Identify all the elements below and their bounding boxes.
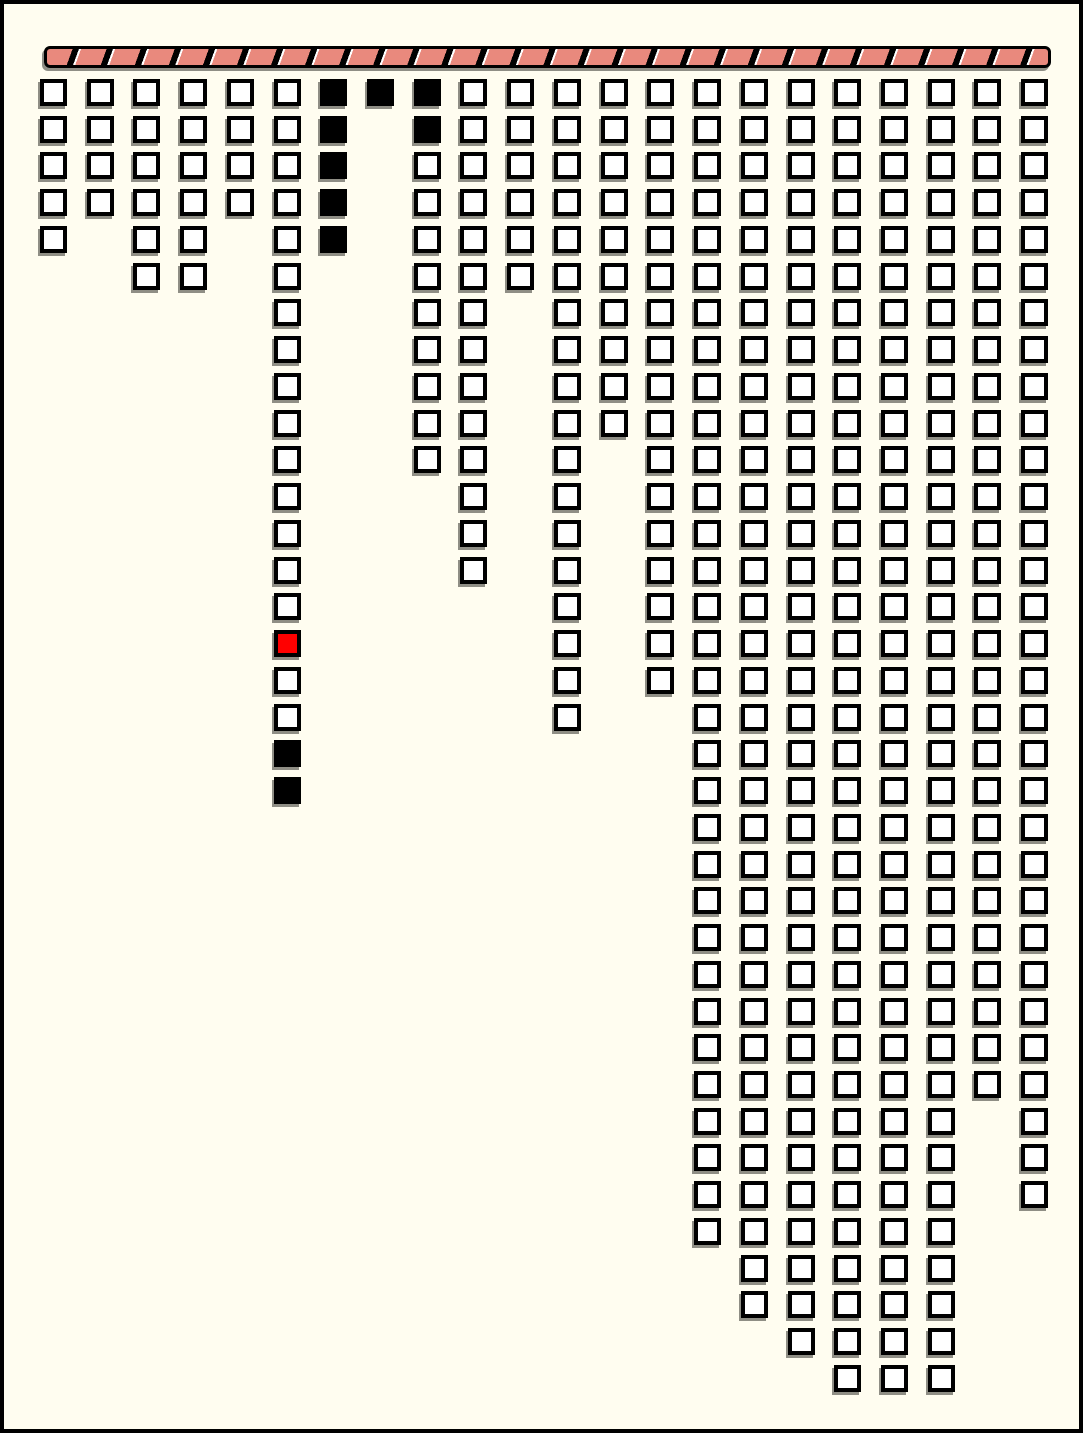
grid-cell[interactable]: [788, 189, 815, 216]
grid-cell[interactable]: [460, 299, 487, 326]
grid-cell[interactable]: [928, 152, 955, 179]
grid-cell[interactable]: [834, 373, 861, 400]
grid-cell[interactable]: [881, 630, 908, 657]
grid-cell[interactable]: [788, 483, 815, 510]
grid-cell[interactable]: [274, 483, 301, 510]
grid-cell[interactable]: [1021, 998, 1048, 1025]
grid-cell[interactable]: [788, 740, 815, 767]
grid-cell[interactable]: [133, 189, 160, 216]
grid-cell[interactable]: [414, 263, 441, 290]
grid-cell[interactable]: [647, 410, 674, 437]
grid-cell[interactable]: [507, 79, 534, 106]
grid-cell[interactable]: [788, 851, 815, 878]
grid-cell[interactable]: [1021, 1181, 1048, 1208]
grid-cell[interactable]: [788, 152, 815, 179]
grid-cell-filled[interactable]: [274, 777, 301, 804]
grid-cell[interactable]: [694, 704, 721, 731]
grid-cell[interactable]: [974, 226, 1001, 253]
grid-cell[interactable]: [788, 1108, 815, 1135]
grid-cell[interactable]: [414, 446, 441, 473]
grid-cell[interactable]: [694, 998, 721, 1025]
grid-cell[interactable]: [741, 961, 768, 988]
grid-cell[interactable]: [1021, 887, 1048, 914]
grid-cell[interactable]: [460, 557, 487, 584]
grid-cell[interactable]: [928, 520, 955, 547]
grid-cell[interactable]: [741, 446, 768, 473]
grid-cell[interactable]: [554, 483, 581, 510]
grid-cell[interactable]: [554, 152, 581, 179]
grid-cell[interactable]: [1021, 814, 1048, 841]
grid-cell[interactable]: [788, 887, 815, 914]
grid-cell[interactable]: [834, 924, 861, 951]
grid-cell[interactable]: [460, 520, 487, 547]
grid-cell[interactable]: [694, 189, 721, 216]
grid-cell[interactable]: [694, 263, 721, 290]
grid-cell[interactable]: [881, 189, 908, 216]
grid-cell[interactable]: [554, 373, 581, 400]
grid-cell[interactable]: [741, 740, 768, 767]
grid-cell[interactable]: [554, 299, 581, 326]
grid-cell-filled[interactable]: [320, 189, 347, 216]
grid-cell[interactable]: [928, 593, 955, 620]
grid-cell[interactable]: [834, 1255, 861, 1282]
grid-cell[interactable]: [274, 79, 301, 106]
grid-cell[interactable]: [694, 740, 721, 767]
grid-cell[interactable]: [974, 998, 1001, 1025]
grid-cell[interactable]: [928, 924, 955, 951]
grid-cell[interactable]: [601, 410, 628, 437]
grid-cell[interactable]: [881, 336, 908, 363]
grid-cell[interactable]: [414, 189, 441, 216]
grid-cell[interactable]: [928, 1108, 955, 1135]
grid-cell[interactable]: [788, 814, 815, 841]
grid-cell[interactable]: [881, 299, 908, 326]
grid-cell[interactable]: [507, 116, 534, 143]
grid-cell[interactable]: [834, 593, 861, 620]
grid-cell[interactable]: [881, 593, 908, 620]
grid-cell[interactable]: [834, 299, 861, 326]
grid-cell[interactable]: [834, 152, 861, 179]
grid-cell[interactable]: [1021, 851, 1048, 878]
grid-cell[interactable]: [881, 520, 908, 547]
grid-cell[interactable]: [694, 79, 721, 106]
grid-cell[interactable]: [647, 116, 674, 143]
grid-cell[interactable]: [928, 116, 955, 143]
grid-cell[interactable]: [928, 1255, 955, 1282]
grid-cell[interactable]: [694, 777, 721, 804]
grid-cell[interactable]: [928, 887, 955, 914]
grid-cell[interactable]: [881, 998, 908, 1025]
grid-cell[interactable]: [554, 630, 581, 657]
grid-cell[interactable]: [227, 152, 254, 179]
grid-cell[interactable]: [40, 152, 67, 179]
grid-cell[interactable]: [788, 1218, 815, 1245]
grid-cell[interactable]: [274, 520, 301, 547]
grid-cell[interactable]: [554, 667, 581, 694]
grid-cell[interactable]: [554, 520, 581, 547]
grid-cell[interactable]: [554, 189, 581, 216]
grid-cell[interactable]: [788, 1255, 815, 1282]
grid-cell[interactable]: [834, 116, 861, 143]
grid-cell[interactable]: [928, 79, 955, 106]
grid-cell[interactable]: [788, 1144, 815, 1171]
grid-cell[interactable]: [974, 299, 1001, 326]
grid-cell[interactable]: [40, 189, 67, 216]
grid-cell[interactable]: [274, 410, 301, 437]
grid-cell[interactable]: [647, 593, 674, 620]
grid-cell[interactable]: [928, 704, 955, 731]
grid-cell[interactable]: [788, 373, 815, 400]
grid-cell[interactable]: [928, 557, 955, 584]
grid-cell[interactable]: [928, 740, 955, 767]
grid-cell[interactable]: [1021, 704, 1048, 731]
grid-cell[interactable]: [834, 1181, 861, 1208]
grid-cell[interactable]: [741, 1291, 768, 1318]
grid-cell[interactable]: [928, 814, 955, 841]
grid-cell[interactable]: [741, 263, 768, 290]
grid-cell[interactable]: [881, 410, 908, 437]
grid-cell[interactable]: [1021, 777, 1048, 804]
grid-cell[interactable]: [881, 887, 908, 914]
grid-cell[interactable]: [133, 116, 160, 143]
grid-cell[interactable]: [834, 410, 861, 437]
grid-cell[interactable]: [274, 299, 301, 326]
grid-cell[interactable]: [881, 851, 908, 878]
grid-cell-filled[interactable]: [274, 740, 301, 767]
grid-cell[interactable]: [507, 263, 534, 290]
grid-cell[interactable]: [788, 593, 815, 620]
grid-cell[interactable]: [601, 373, 628, 400]
grid-cell[interactable]: [974, 924, 1001, 951]
grid-cell[interactable]: [40, 226, 67, 253]
grid-cell[interactable]: [928, 299, 955, 326]
grid-cell[interactable]: [788, 520, 815, 547]
grid-cell-filled[interactable]: [320, 116, 347, 143]
grid-cell[interactable]: [180, 116, 207, 143]
grid-cell[interactable]: [974, 630, 1001, 657]
grid-cell[interactable]: [507, 189, 534, 216]
grid-cell[interactable]: [647, 557, 674, 584]
grid-cell[interactable]: [881, 1181, 908, 1208]
grid-cell[interactable]: [180, 152, 207, 179]
grid-cell[interactable]: [881, 263, 908, 290]
grid-cell[interactable]: [881, 1218, 908, 1245]
grid-cell[interactable]: [274, 263, 301, 290]
grid-cell[interactable]: [1021, 1144, 1048, 1171]
grid-cell[interactable]: [881, 446, 908, 473]
grid-cell[interactable]: [1021, 1108, 1048, 1135]
grid-cell[interactable]: [741, 887, 768, 914]
grid-cell[interactable]: [741, 483, 768, 510]
grid-cell[interactable]: [881, 1108, 908, 1135]
grid-cell[interactable]: [601, 226, 628, 253]
grid-cell[interactable]: [414, 299, 441, 326]
grid-cell[interactable]: [741, 1218, 768, 1245]
grid-cell[interactable]: [40, 79, 67, 106]
grid-cell[interactable]: [974, 777, 1001, 804]
grid-cell[interactable]: [788, 704, 815, 731]
grid-cell[interactable]: [1021, 373, 1048, 400]
grid-cell[interactable]: [414, 336, 441, 363]
grid-cell[interactable]: [834, 336, 861, 363]
grid-cell[interactable]: [834, 1365, 861, 1392]
grid-cell[interactable]: [694, 336, 721, 363]
grid-cell[interactable]: [133, 152, 160, 179]
grid-cell[interactable]: [928, 1181, 955, 1208]
grid-cell-filled[interactable]: [414, 116, 441, 143]
grid-cell[interactable]: [741, 777, 768, 804]
grid-cell[interactable]: [834, 1218, 861, 1245]
grid-cell[interactable]: [974, 593, 1001, 620]
grid-cell[interactable]: [834, 1144, 861, 1171]
grid-cell[interactable]: [881, 777, 908, 804]
grid-cell[interactable]: [274, 116, 301, 143]
grid-cell[interactable]: [227, 189, 254, 216]
grid-cell[interactable]: [834, 446, 861, 473]
grid-cell[interactable]: [1021, 924, 1048, 951]
grid-cell[interactable]: [881, 704, 908, 731]
grid-cell[interactable]: [274, 593, 301, 620]
grid-cell[interactable]: [694, 630, 721, 657]
grid-cell[interactable]: [414, 152, 441, 179]
grid-cell[interactable]: [647, 79, 674, 106]
grid-cell[interactable]: [647, 373, 674, 400]
grid-cell[interactable]: [974, 189, 1001, 216]
grid-cell[interactable]: [694, 410, 721, 437]
grid-cell[interactable]: [694, 520, 721, 547]
grid-cell[interactable]: [694, 1181, 721, 1208]
grid-cell[interactable]: [694, 1218, 721, 1245]
grid-cell[interactable]: [788, 1328, 815, 1355]
grid-cell[interactable]: [741, 593, 768, 620]
grid-cell[interactable]: [1021, 1034, 1048, 1061]
grid-cell[interactable]: [741, 851, 768, 878]
grid-cell[interactable]: [928, 777, 955, 804]
grid-cell[interactable]: [741, 998, 768, 1025]
grid-cell[interactable]: [741, 630, 768, 657]
grid-cell[interactable]: [601, 79, 628, 106]
grid-cell[interactable]: [1021, 152, 1048, 179]
grid-cell[interactable]: [274, 557, 301, 584]
grid-cell[interactable]: [40, 116, 67, 143]
grid-cell[interactable]: [694, 483, 721, 510]
grid-cell[interactable]: [881, 1144, 908, 1171]
grid-cell[interactable]: [881, 79, 908, 106]
grid-cell[interactable]: [881, 814, 908, 841]
grid-cell[interactable]: [741, 79, 768, 106]
grid-cell[interactable]: [788, 116, 815, 143]
grid-cell[interactable]: [180, 263, 207, 290]
grid-cell[interactable]: [694, 814, 721, 841]
grid-cell[interactable]: [554, 410, 581, 437]
grid-cell[interactable]: [928, 1034, 955, 1061]
grid-cell[interactable]: [1021, 961, 1048, 988]
grid-cell[interactable]: [741, 704, 768, 731]
grid-cell[interactable]: [414, 226, 441, 253]
grid-cell[interactable]: [928, 1218, 955, 1245]
grid-cell[interactable]: [694, 299, 721, 326]
grid-cell[interactable]: [788, 446, 815, 473]
grid-cell[interactable]: [881, 961, 908, 988]
grid-cell[interactable]: [1021, 667, 1048, 694]
grid-cell[interactable]: [694, 1071, 721, 1098]
grid-cell[interactable]: [694, 226, 721, 253]
grid-cell[interactable]: [834, 1328, 861, 1355]
grid-cell[interactable]: [788, 777, 815, 804]
grid-cell[interactable]: [928, 410, 955, 437]
grid-cell[interactable]: [974, 1071, 1001, 1098]
grid-cell[interactable]: [928, 1328, 955, 1355]
grid-cell[interactable]: [460, 483, 487, 510]
grid-cell[interactable]: [460, 152, 487, 179]
grid-cell[interactable]: [788, 557, 815, 584]
grid-cell[interactable]: [647, 226, 674, 253]
grid-cell[interactable]: [1021, 557, 1048, 584]
grid-cell[interactable]: [647, 446, 674, 473]
grid-cell[interactable]: [1021, 299, 1048, 326]
grid-cell[interactable]: [601, 189, 628, 216]
grid-cell[interactable]: [788, 1181, 815, 1208]
grid-cell[interactable]: [1021, 336, 1048, 363]
grid-cell[interactable]: [741, 299, 768, 326]
grid-cell[interactable]: [647, 483, 674, 510]
grid-cell[interactable]: [974, 887, 1001, 914]
grid-cell[interactable]: [974, 1034, 1001, 1061]
grid-cell[interactable]: [460, 373, 487, 400]
grid-cell-filled[interactable]: [320, 152, 347, 179]
grid-cell-filled[interactable]: [367, 79, 394, 106]
grid-cell[interactable]: [834, 851, 861, 878]
grid-cell[interactable]: [788, 226, 815, 253]
grid-cell[interactable]: [788, 924, 815, 951]
grid-cell[interactable]: [834, 1291, 861, 1318]
grid-cell[interactable]: [647, 189, 674, 216]
grid-cell[interactable]: [834, 961, 861, 988]
grid-cell[interactable]: [460, 263, 487, 290]
grid-cell[interactable]: [881, 116, 908, 143]
grid-cell[interactable]: [928, 1144, 955, 1171]
grid-cell[interactable]: [274, 667, 301, 694]
grid-cell[interactable]: [788, 1034, 815, 1061]
grid-cell[interactable]: [881, 1034, 908, 1061]
grid-cell[interactable]: [834, 483, 861, 510]
grid-cell[interactable]: [881, 740, 908, 767]
grid-cell[interactable]: [694, 152, 721, 179]
grid-cell[interactable]: [974, 740, 1001, 767]
grid-cell[interactable]: [974, 116, 1001, 143]
grid-cell[interactable]: [741, 924, 768, 951]
grid-cell[interactable]: [788, 299, 815, 326]
grid-cell[interactable]: [928, 630, 955, 657]
grid-cell[interactable]: [741, 814, 768, 841]
grid-cell[interactable]: [741, 557, 768, 584]
grid-cell[interactable]: [741, 410, 768, 437]
grid-cell[interactable]: [460, 226, 487, 253]
grid-cell[interactable]: [974, 373, 1001, 400]
grid-cell[interactable]: [974, 79, 1001, 106]
grid-cell[interactable]: [554, 226, 581, 253]
grid-cell[interactable]: [974, 667, 1001, 694]
grid-cell[interactable]: [274, 226, 301, 253]
grid-cell[interactable]: [741, 520, 768, 547]
grid-cell[interactable]: [788, 263, 815, 290]
grid-cell[interactable]: [881, 667, 908, 694]
grid-cell[interactable]: [834, 1108, 861, 1135]
grid-cell[interactable]: [87, 79, 114, 106]
grid-cell[interactable]: [1021, 79, 1048, 106]
grid-cell[interactable]: [974, 410, 1001, 437]
grid-cell[interactable]: [694, 924, 721, 951]
grid-cell[interactable]: [227, 79, 254, 106]
grid-cell[interactable]: [928, 226, 955, 253]
grid-cell[interactable]: [928, 446, 955, 473]
grid-cell[interactable]: [1021, 226, 1048, 253]
grid-cell[interactable]: [928, 961, 955, 988]
grid-cell[interactable]: [928, 998, 955, 1025]
grid-cell[interactable]: [601, 263, 628, 290]
grid-cell[interactable]: [460, 116, 487, 143]
grid-cell[interactable]: [788, 79, 815, 106]
grid-cell[interactable]: [1021, 630, 1048, 657]
grid-cell[interactable]: [881, 1328, 908, 1355]
grid-cell[interactable]: [788, 410, 815, 437]
grid-cell[interactable]: [460, 336, 487, 363]
grid-cell[interactable]: [741, 667, 768, 694]
grid-cell[interactable]: [974, 961, 1001, 988]
grid-cell[interactable]: [1021, 263, 1048, 290]
grid-cell[interactable]: [741, 152, 768, 179]
grid-cell[interactable]: [928, 1071, 955, 1098]
grid-cell[interactable]: [601, 116, 628, 143]
grid-cell[interactable]: [928, 851, 955, 878]
grid-cell[interactable]: [694, 116, 721, 143]
grid-cell[interactable]: [881, 557, 908, 584]
grid-cell[interactable]: [133, 79, 160, 106]
grid-cell-filled[interactable]: [320, 226, 347, 253]
grid-cell[interactable]: [974, 851, 1001, 878]
grid-cell[interactable]: [274, 189, 301, 216]
grid-cell[interactable]: [507, 226, 534, 253]
grid-cell[interactable]: [647, 263, 674, 290]
grid-cell[interactable]: [647, 336, 674, 363]
grid-cell[interactable]: [460, 446, 487, 473]
grid-cell[interactable]: [647, 152, 674, 179]
grid-cell[interactable]: [834, 777, 861, 804]
grid-cell[interactable]: [834, 557, 861, 584]
grid-cell[interactable]: [834, 704, 861, 731]
grid-cell[interactable]: [834, 998, 861, 1025]
grid-cell[interactable]: [554, 116, 581, 143]
grid-cell[interactable]: [507, 152, 534, 179]
grid-cell[interactable]: [601, 336, 628, 363]
grid-cell[interactable]: [974, 704, 1001, 731]
grid-cell[interactable]: [741, 189, 768, 216]
grid-cell[interactable]: [694, 961, 721, 988]
grid-cell[interactable]: [741, 1144, 768, 1171]
grid-cell[interactable]: [834, 1034, 861, 1061]
grid-cell[interactable]: [414, 373, 441, 400]
grid-cell[interactable]: [881, 1291, 908, 1318]
grid-cell[interactable]: [460, 79, 487, 106]
grid-cell[interactable]: [788, 630, 815, 657]
grid-cell[interactable]: [274, 373, 301, 400]
grid-cell[interactable]: [133, 226, 160, 253]
grid-cell[interactable]: [414, 410, 441, 437]
grid-cell[interactable]: [928, 483, 955, 510]
grid-cell[interactable]: [460, 410, 487, 437]
grid-cell[interactable]: [834, 630, 861, 657]
grid-cell[interactable]: [834, 189, 861, 216]
